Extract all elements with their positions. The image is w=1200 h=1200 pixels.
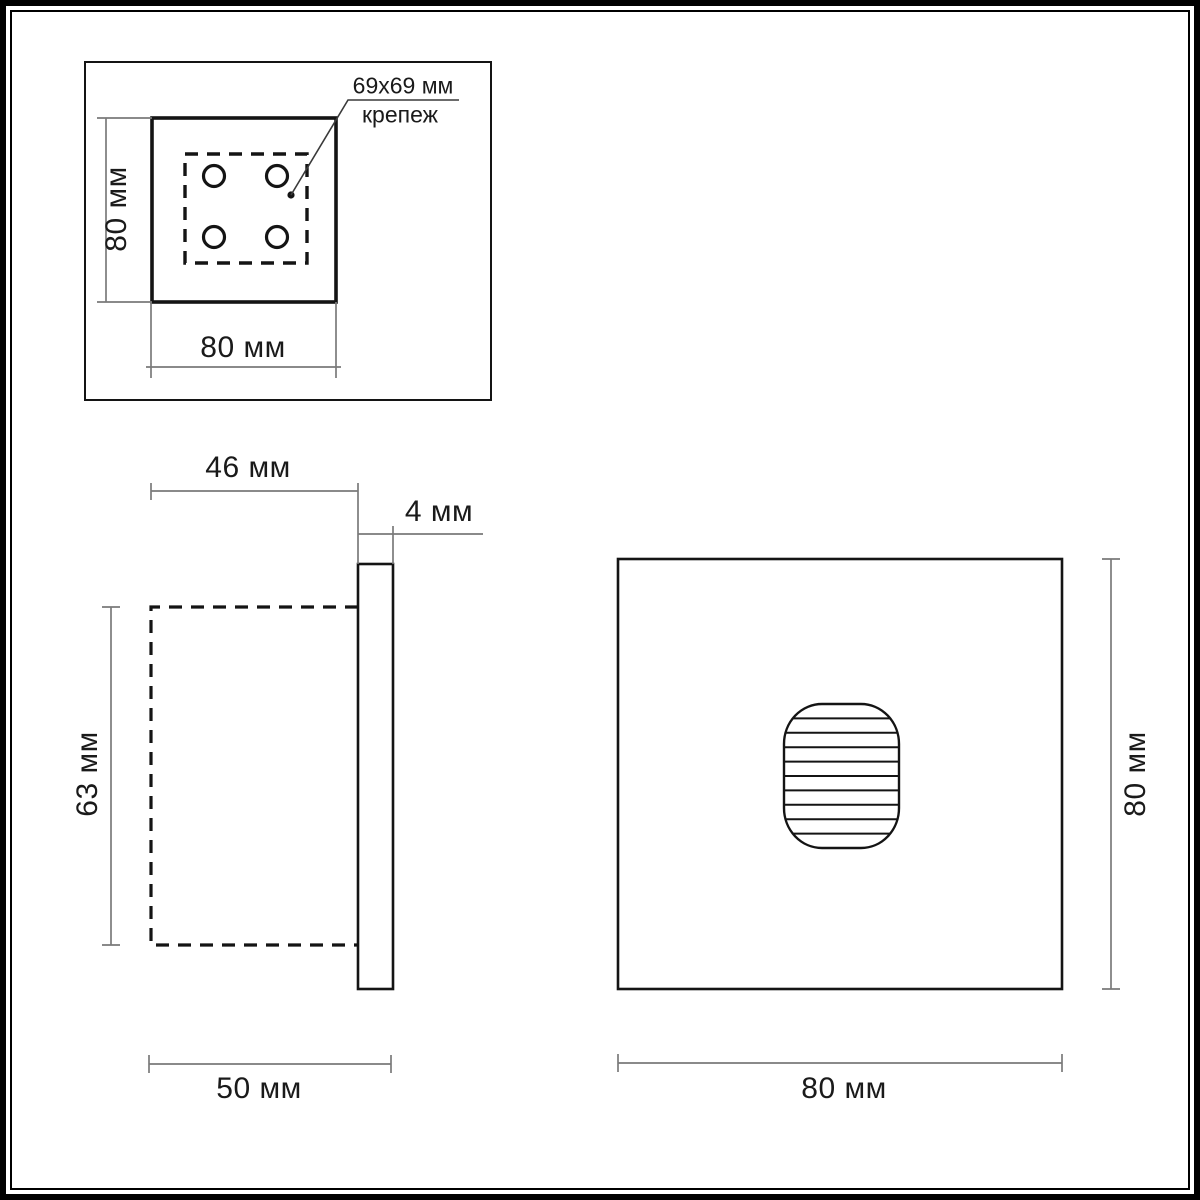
mount-note-line1: 69x69 мм [353, 73, 454, 100]
aperture-louver-lines [776, 718, 907, 833]
top-view-mount-dashed-square [185, 154, 307, 263]
front-view-height-dimension-lines [1102, 559, 1120, 989]
mount-hole-bottom-right [267, 227, 288, 248]
mount-hole-bottom-left [204, 227, 225, 248]
front-view-face-square [618, 559, 1062, 989]
side-view-recess-depth-label: 46 мм [205, 451, 290, 485]
side-view-recess-depth-dimension-lines [151, 483, 358, 564]
side-view-face-plate [358, 564, 393, 989]
side-view-recessed-body-dashed [151, 607, 358, 945]
mount-hole-top-right [267, 166, 288, 187]
side-view-plate-thickness-dimension-lines [358, 526, 483, 564]
side-view-plate-thickness-label: 4 мм [405, 495, 473, 529]
side-view-total-depth-label: 50 мм [216, 1072, 301, 1106]
top-view-height-label: 80 мм [100, 166, 134, 251]
front-view-width-dimension-lines [618, 1054, 1062, 1072]
side-view-total-depth-dimension-lines [149, 1055, 391, 1073]
drawing-linework [6, 6, 1200, 1200]
front-view-width-label: 80 мм [801, 1072, 886, 1106]
mount-hole-top-left [204, 166, 225, 187]
side-view [102, 483, 483, 1073]
front-view-height-label: 80 мм [1119, 731, 1153, 816]
top-view-width-label: 80 мм [200, 331, 285, 365]
mount-note-line2: крепеж [362, 102, 438, 129]
front-view [618, 559, 1120, 1072]
drawing-page: 80 мм 80 мм 69x69 мм крепеж 46 мм 4 мм 6… [0, 0, 1200, 1200]
side-view-recess-height-label: 63 мм [71, 731, 105, 816]
